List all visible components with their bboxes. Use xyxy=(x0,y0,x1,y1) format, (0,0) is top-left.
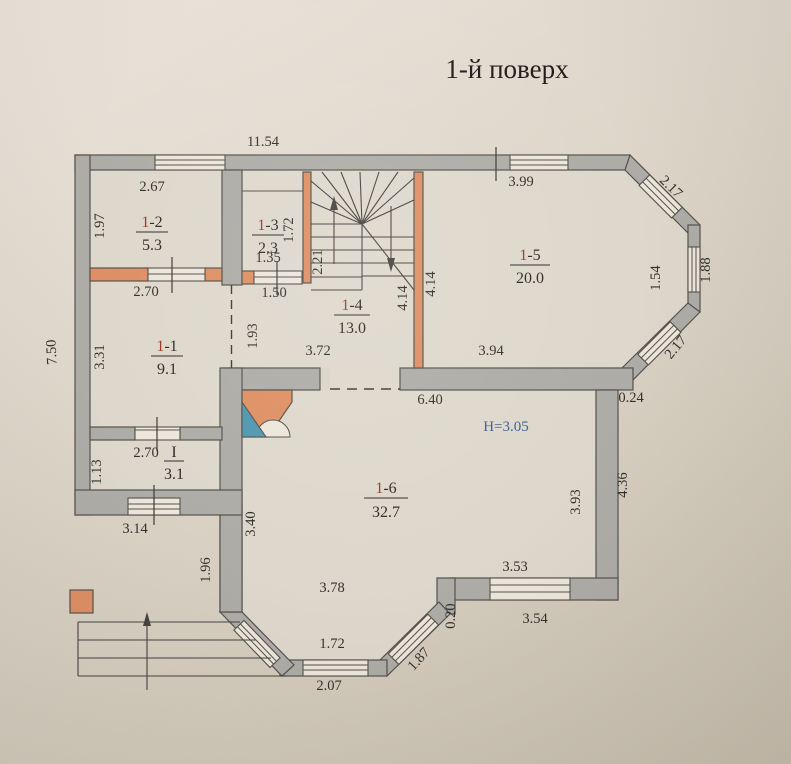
svg-text:1-1: 1-1 xyxy=(156,338,177,355)
partition-r12-left xyxy=(90,268,148,281)
svg-text:2.3: 2.3 xyxy=(258,240,278,257)
dim-r15-top: 3.99 xyxy=(508,174,533,190)
svg-text:1-4: 1-4 xyxy=(341,297,362,314)
dim-bay-right-outer: 1.88 xyxy=(698,257,714,282)
window-top-r15 xyxy=(510,155,568,170)
floor-plan-drawing: 11.54 7.50 2.67 1.97 2.70 1.35 1.50 1.72… xyxy=(0,0,791,764)
partition-stairs-right xyxy=(414,172,423,368)
wall-r11-bottom-right xyxy=(180,427,222,440)
dim-r14-right: 4.14 xyxy=(395,285,411,311)
dim-r15-left: 4.14 xyxy=(423,271,439,297)
dim-step-offset: 0.20 xyxy=(443,603,459,628)
dim-r13-bottom: 1.50 xyxy=(261,285,286,301)
dim-r16-right-inner: 3.93 xyxy=(568,489,584,514)
dim-r11-left: 3.31 xyxy=(92,344,108,369)
dim-porch-top: 3.14 xyxy=(122,521,148,537)
dim-porch-right: 1.96 xyxy=(198,557,214,582)
dim-overall-top: 11.54 xyxy=(247,134,280,150)
dim-r14-bottom: 3.72 xyxy=(305,343,330,359)
wall-left xyxy=(75,155,90,515)
ceiling-height-note: H=3.05 xyxy=(483,419,529,435)
floor-plan-photo: 11.54 7.50 2.67 1.97 2.70 1.35 1.50 1.72… xyxy=(0,0,791,764)
svg-text:5.3: 5.3 xyxy=(142,237,162,254)
dim-r12-top: 2.67 xyxy=(139,179,164,195)
opening-r12-bottom xyxy=(148,268,205,281)
svg-text:32.7: 32.7 xyxy=(372,504,400,521)
window-top-left xyxy=(155,155,225,170)
window-r16-bottom xyxy=(490,578,570,600)
page-title: 1-й поверх xyxy=(445,54,569,84)
dim-r16-right-outer: 4.36 xyxy=(615,472,631,497)
wall-r11-bottom-left xyxy=(90,427,135,440)
dim-bay2-width: 3.78 xyxy=(319,580,344,596)
svg-text:1-3: 1-3 xyxy=(257,217,278,234)
porch-column xyxy=(70,590,93,613)
svg-text:1-5: 1-5 xyxy=(519,247,540,264)
wall-porch-right xyxy=(220,512,242,612)
window-bay2-bottom xyxy=(303,660,368,676)
dim-hall-opening: 1.93 xyxy=(245,323,261,348)
dim-r16-top: 6.40 xyxy=(417,392,442,408)
wall-central-upper xyxy=(222,170,242,285)
svg-text:1-6: 1-6 xyxy=(375,480,396,497)
wall-r15-bottom xyxy=(400,368,633,390)
dim-r12-left: 1.97 xyxy=(92,213,108,238)
svg-text:1-2: 1-2 xyxy=(141,214,162,231)
dim-rI-top: 2.70 xyxy=(133,445,158,461)
dim-r16-win-bottom: 3.53 xyxy=(502,559,527,575)
dim-stairs-flight: 2.21 xyxy=(310,249,326,274)
dim-r16-bottom: 3.54 xyxy=(522,611,548,627)
dim-r13-right: 1.72 xyxy=(281,217,297,242)
porch-up-arrow xyxy=(143,612,151,690)
dim-r15-bottom: 3.94 xyxy=(478,343,504,359)
window-r13-bottom xyxy=(254,271,302,284)
partition-r12-right xyxy=(205,268,222,281)
partition-r13-left xyxy=(242,271,254,284)
dim-bay2-bottom: 2.07 xyxy=(316,678,341,694)
dim-rI-left: 1.13 xyxy=(89,459,105,484)
dim-corner-offset: 0.24 xyxy=(618,390,644,406)
svg-text:20.0: 20.0 xyxy=(516,270,544,287)
dim-bay2-win: 1.72 xyxy=(319,636,344,652)
dim-overall-left: 7.50 xyxy=(43,339,60,365)
svg-text:3.1: 3.1 xyxy=(164,466,184,483)
corner-fireplace xyxy=(242,390,292,437)
svg-text:I: I xyxy=(171,444,176,461)
svg-text:9.1: 9.1 xyxy=(157,361,177,378)
dim-r16-left: 3.40 xyxy=(243,511,259,536)
dim-r12-bottom: 2.70 xyxy=(133,284,158,300)
svg-text:13.0: 13.0 xyxy=(338,320,366,337)
dim-bay-right-inner: 1.54 xyxy=(648,265,664,291)
